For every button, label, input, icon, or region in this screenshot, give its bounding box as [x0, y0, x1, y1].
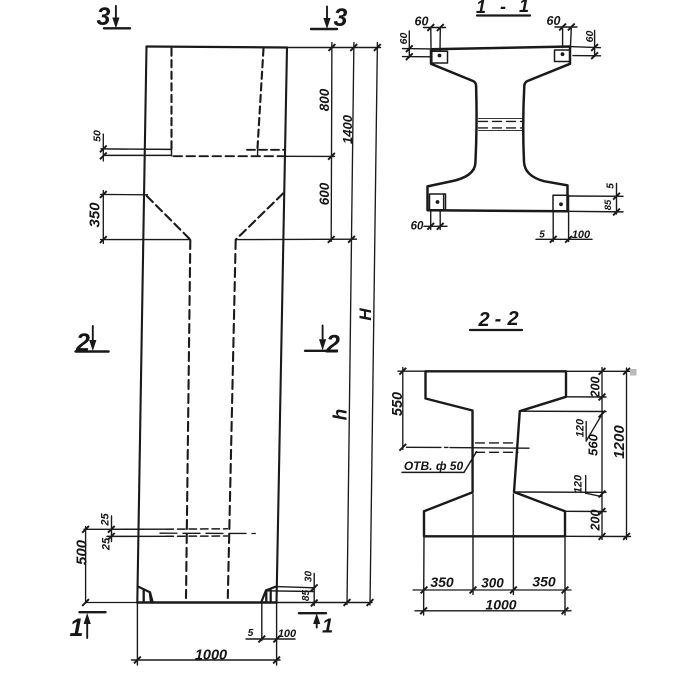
svg-text:1200: 1200 — [611, 425, 628, 459]
svg-text:1000: 1000 — [195, 648, 227, 664]
svg-text:25: 25 — [101, 537, 113, 551]
svg-text:60: 60 — [398, 33, 410, 45]
svg-text:120: 120 — [573, 474, 585, 493]
svg-text:1: 1 — [322, 616, 333, 638]
svg-text:30: 30 — [304, 571, 315, 583]
svg-text:550: 550 — [390, 392, 406, 416]
svg-text:ОТВ. ф 50: ОТВ. ф 50 — [404, 459, 464, 473]
svg-text:100: 100 — [572, 229, 591, 241]
svg-text:1: 1 — [70, 614, 84, 642]
svg-text:h: h — [331, 409, 352, 421]
svg-text:2: 2 — [477, 309, 489, 331]
svg-text:2: 2 — [75, 329, 90, 357]
svg-text:800: 800 — [317, 88, 332, 111]
svg-text:2: 2 — [506, 308, 518, 330]
svg-text:60: 60 — [415, 15, 429, 29]
svg-text:1: 1 — [519, 0, 529, 16]
svg-text:3: 3 — [97, 3, 111, 31]
svg-text:H: H — [356, 308, 375, 321]
svg-text:500: 500 — [74, 539, 91, 565]
svg-text:1000: 1000 — [485, 597, 516, 613]
svg-text:200: 200 — [589, 377, 603, 399]
svg-text:350: 350 — [430, 574, 454, 590]
svg-text:350: 350 — [87, 202, 104, 228]
svg-text:200: 200 — [589, 510, 603, 532]
svg-text:560: 560 — [586, 433, 601, 455]
svg-text:25: 25 — [100, 513, 112, 527]
svg-text:50: 50 — [92, 130, 104, 142]
svg-text:-: - — [495, 309, 502, 331]
svg-text:2: 2 — [325, 331, 340, 359]
svg-text:85: 85 — [603, 199, 614, 210]
svg-text:5: 5 — [606, 183, 617, 189]
svg-text:5: 5 — [248, 628, 254, 639]
svg-text:350: 350 — [532, 574, 556, 590]
svg-text:85: 85 — [301, 590, 312, 602]
svg-text:3: 3 — [334, 4, 348, 32]
svg-text:100: 100 — [278, 628, 297, 640]
svg-text:300: 300 — [481, 576, 504, 591]
svg-text:1400: 1400 — [340, 114, 355, 144]
svg-text:600: 600 — [317, 182, 332, 205]
svg-text:60: 60 — [411, 221, 424, 233]
svg-text:60: 60 — [547, 14, 561, 28]
svg-text:60: 60 — [584, 31, 596, 43]
svg-text:-: - — [500, 0, 506, 17]
svg-text:5: 5 — [539, 230, 545, 241]
